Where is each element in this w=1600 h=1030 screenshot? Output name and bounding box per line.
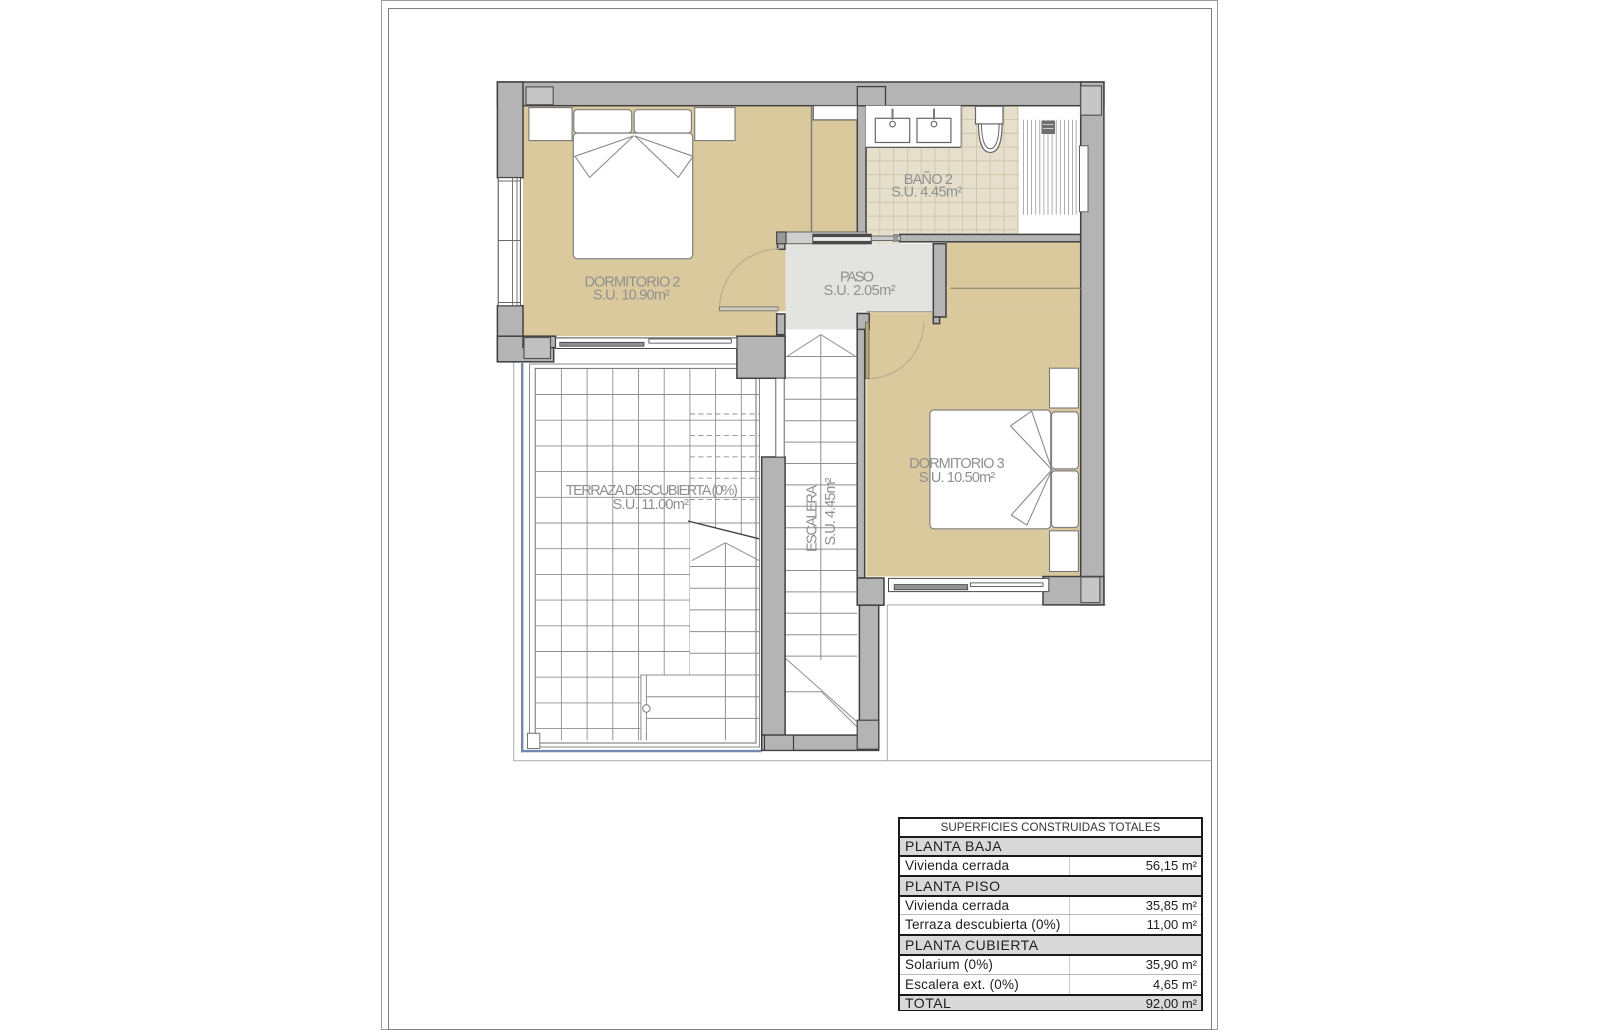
- svg-text:S.U. 4.45m²: S.U. 4.45m²: [891, 185, 962, 201]
- svg-text:S.U. 11.00m²: S.U. 11.00m²: [613, 497, 689, 513]
- svg-text:S.U. 4.45m²: S.U. 4.45m²: [823, 477, 839, 545]
- svg-text:ESCALERA: ESCALERA: [805, 485, 821, 552]
- svg-text:S.U. 10.90m²: S.U. 10.90m²: [593, 288, 670, 304]
- svg-text:S.U. 10.50m²: S.U. 10.50m²: [919, 470, 996, 486]
- svg-text:S.U. 2.05m²: S.U. 2.05m²: [824, 283, 896, 299]
